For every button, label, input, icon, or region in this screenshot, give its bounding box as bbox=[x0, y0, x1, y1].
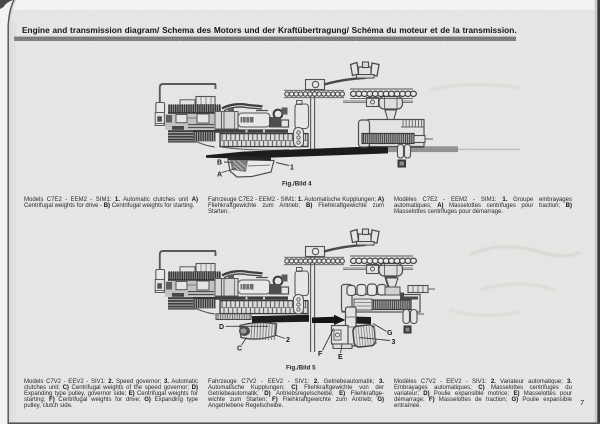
svg-text:C: C bbox=[237, 346, 242, 353]
svg-text:A: A bbox=[217, 172, 222, 179]
svg-text:2: 2 bbox=[286, 337, 290, 344]
svg-text:D: D bbox=[219, 324, 224, 331]
svg-text:Fig./Bild 4: Fig./Bild 4 bbox=[282, 181, 312, 188]
svg-text:1: 1 bbox=[290, 165, 294, 172]
svg-text:B: B bbox=[217, 160, 222, 167]
svg-text:E: E bbox=[338, 354, 343, 361]
svg-text:3: 3 bbox=[392, 339, 396, 346]
svg-text:Fig./Bild 5: Fig./Bild 5 bbox=[286, 365, 316, 372]
svg-text:G: G bbox=[387, 330, 393, 337]
svg-text:F: F bbox=[318, 351, 323, 358]
